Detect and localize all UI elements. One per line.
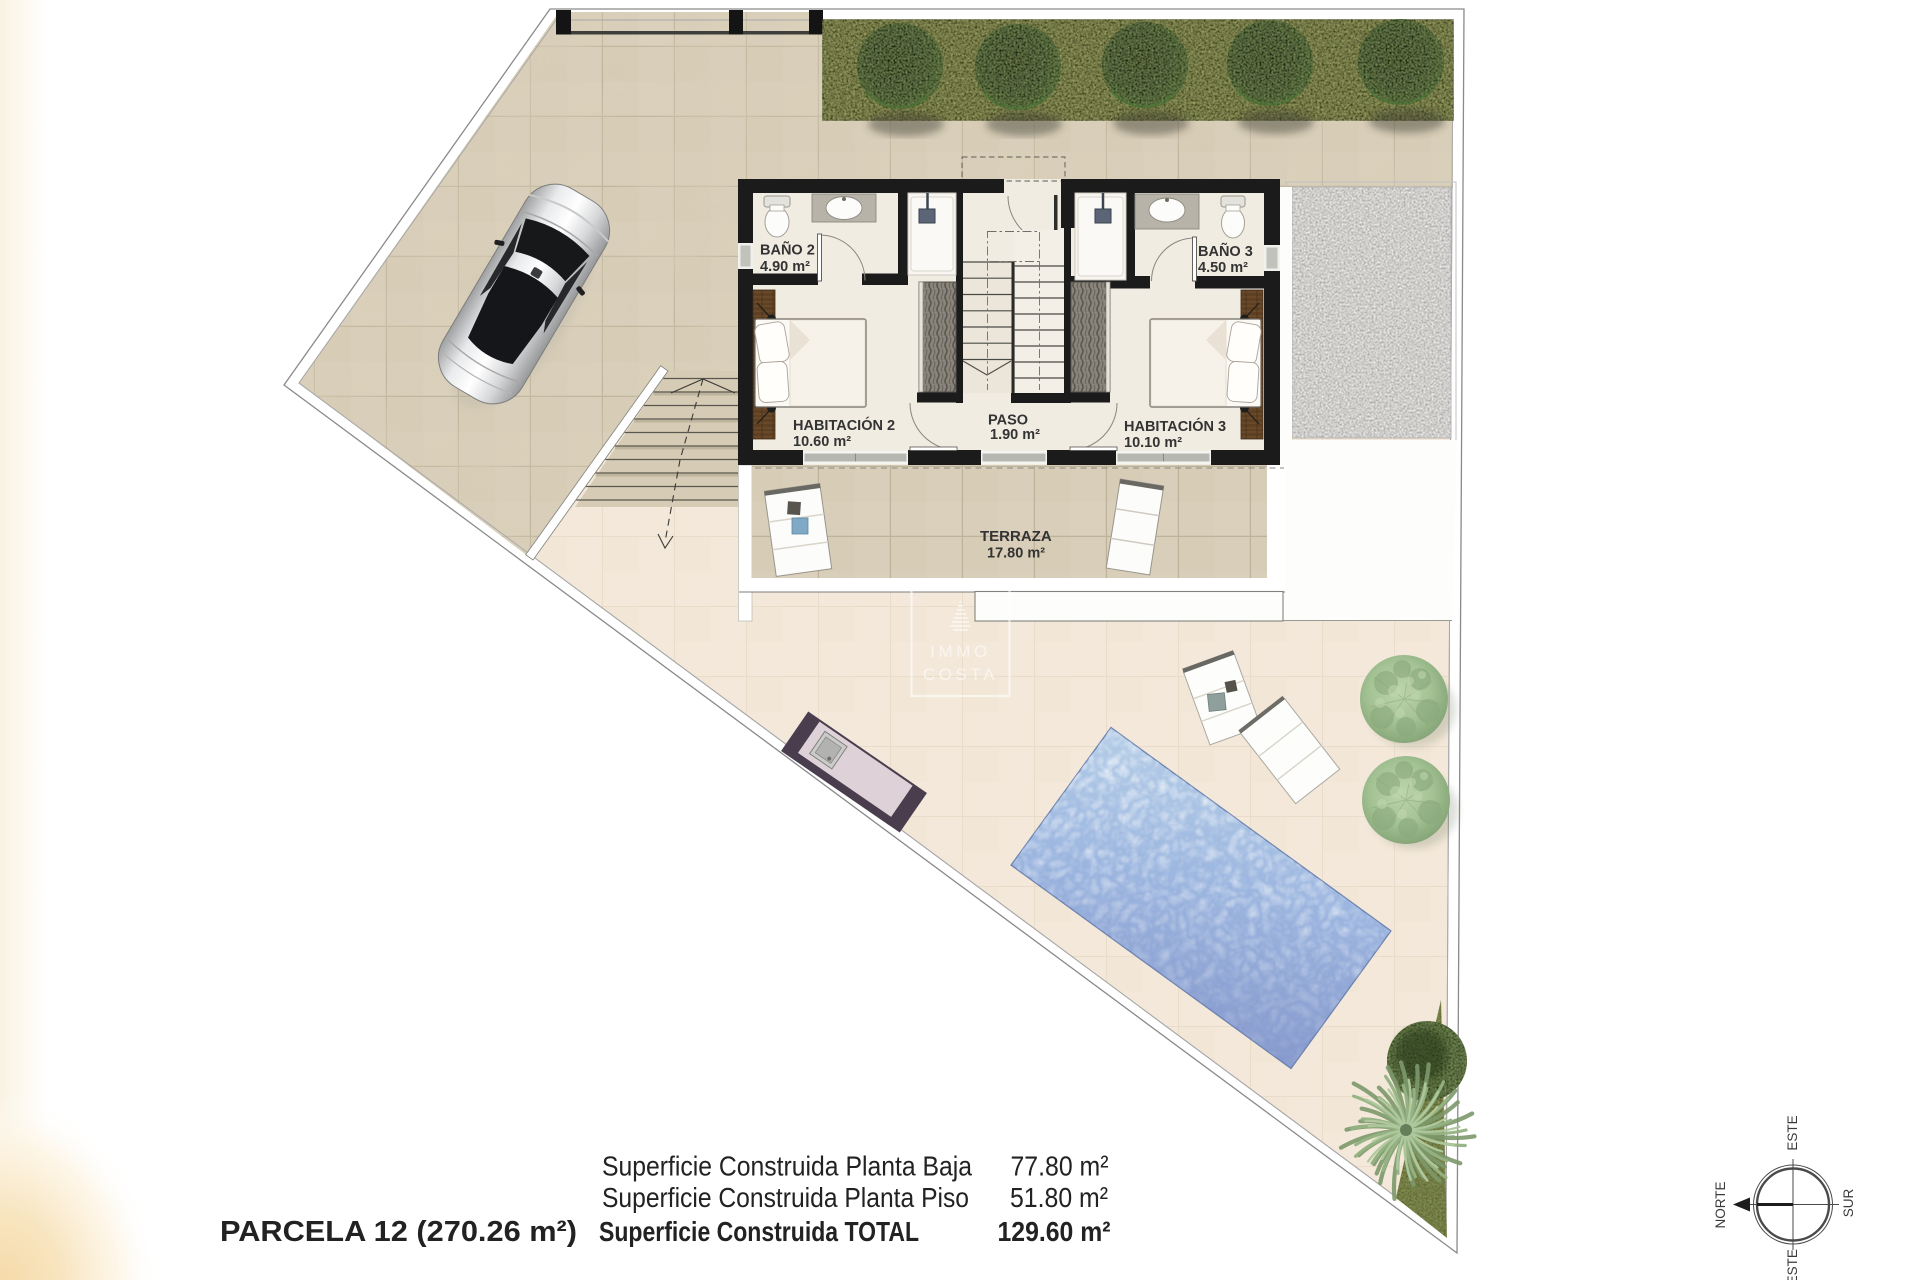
svg-text:TERRAZA: TERRAZA [980,528,1052,545]
svg-text:OESTE: OESTE [1785,1249,1800,1280]
svg-text:HABITACIÓN 3: HABITACIÓN 3 [1124,417,1226,435]
svg-text:4.90 m²: 4.90 m² [760,259,810,275]
svg-text:HABITACIÓN 2: HABITACIÓN 2 [793,416,895,434]
svg-text:NORTE: NORTE [1713,1181,1728,1228]
svg-text:BAÑO 2: BAÑO 2 [760,241,815,259]
svg-text:COSTA: COSTA [923,665,998,684]
svg-text:129.60 m²: 129.60 m² [998,1216,1111,1247]
svg-text:51.80 m²: 51.80 m² [1010,1182,1108,1213]
svg-text:PARCELA 12 (270.26 m²): PARCELA 12 (270.26 m²) [220,1216,577,1248]
svg-text:4.50 m²: 4.50 m² [1198,260,1248,276]
svg-text:Superficie Construida TOTAL: Superficie Construida TOTAL [599,1216,919,1247]
svg-text:Superficie Construida Planta B: Superficie Construida Planta Baja [602,1151,972,1182]
svg-text:BAÑO 3: BAÑO 3 [1198,242,1253,260]
svg-text:SUR: SUR [1841,1189,1856,1218]
svg-text:77.80 m²: 77.80 m² [1011,1151,1109,1182]
svg-text:Superficie Construida Planta P: Superficie Construida Planta Piso [602,1182,969,1213]
svg-text:ESTE: ESTE [1785,1115,1800,1150]
svg-text:17.80 m²: 17.80 m² [987,546,1045,562]
svg-text:IMMO: IMMO [930,642,991,661]
svg-text:10.10 m²: 10.10 m² [1124,435,1182,451]
svg-text:10.60 m²: 10.60 m² [793,434,851,450]
svg-text:1.90 m²: 1.90 m² [990,427,1040,443]
